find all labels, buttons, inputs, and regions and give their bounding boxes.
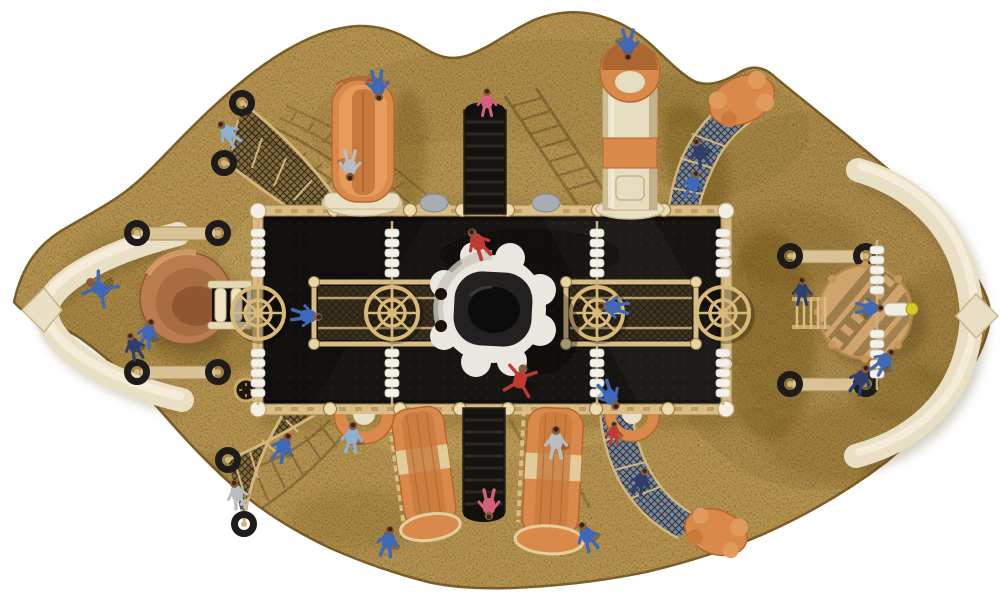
playground-render bbox=[0, 0, 1000, 594]
double-wave-slide bbox=[322, 77, 402, 216]
tire-anchor bbox=[209, 363, 228, 382]
tube-slide-tower bbox=[596, 42, 664, 219]
tire-anchor bbox=[209, 224, 228, 243]
climbing-stairs-north bbox=[464, 102, 506, 214]
tire-anchor bbox=[781, 247, 800, 266]
sail-mast bbox=[870, 246, 884, 294]
tire-anchor bbox=[233, 94, 252, 113]
tire-anchor bbox=[215, 154, 234, 173]
telescope bbox=[884, 303, 918, 316]
tire-anchor bbox=[128, 224, 147, 243]
tire-anchor bbox=[128, 363, 147, 382]
tire-anchor bbox=[781, 375, 800, 394]
scene-canvas bbox=[0, 0, 1000, 594]
tire-anchor bbox=[235, 515, 254, 534]
tire-anchor bbox=[219, 451, 238, 470]
